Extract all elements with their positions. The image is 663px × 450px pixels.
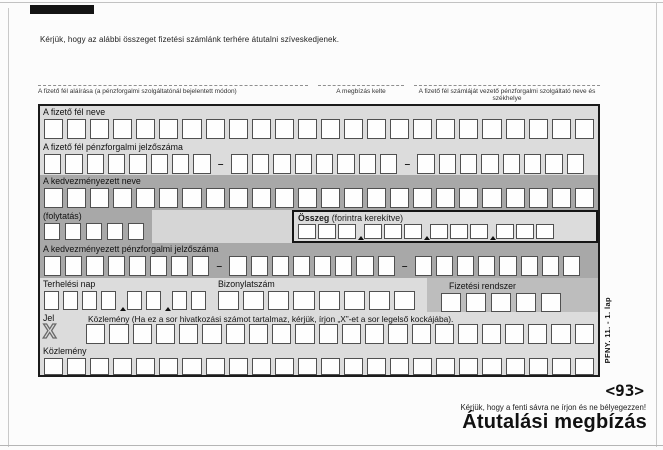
- char-cell[interactable]: [275, 119, 294, 139]
- char-cell[interactable]: [275, 188, 294, 208]
- char-cell[interactable]: [575, 324, 594, 344]
- char-cell[interactable]: [206, 358, 225, 375]
- payer-account-row: A fizető fél pénzforgalmi jelzőszáma ––: [40, 141, 598, 175]
- page-frame-left: [8, 8, 9, 447]
- char-cell[interactable]: [541, 293, 561, 312]
- char-cell[interactable]: [229, 256, 246, 276]
- char-cell[interactable]: [202, 324, 221, 344]
- char-cell[interactable]: [506, 119, 525, 139]
- char-cell[interactable]: [171, 256, 188, 276]
- char-cell[interactable]: [249, 324, 268, 344]
- beneficiary-name-cells: [40, 187, 598, 211]
- char-cell[interactable]: [575, 119, 594, 139]
- char-cell[interactable]: [272, 324, 291, 344]
- payer-account-label: A fizető fél pénzforgalmi jelzőszáma: [40, 141, 598, 153]
- char-cell[interactable]: [384, 224, 402, 239]
- voucher-number-section: Bizonylatszám: [212, 278, 427, 312]
- debit-day-section: Terhelési nap: [40, 278, 212, 312]
- amount-cells: [294, 224, 596, 241]
- char-cell[interactable]: [136, 119, 155, 139]
- char-cell[interactable]: [63, 291, 78, 310]
- char-cell[interactable]: [65, 154, 82, 174]
- char-cell[interactable]: [563, 256, 580, 276]
- char-cell[interactable]: [136, 188, 155, 208]
- remittance2-label: Közlemény: [40, 345, 598, 357]
- char-cell[interactable]: [128, 223, 144, 240]
- char-cell[interactable]: [413, 358, 432, 375]
- char-cell[interactable]: [316, 154, 333, 174]
- char-cell[interactable]: [506, 188, 525, 208]
- char-cell[interactable]: [503, 154, 520, 174]
- beneficiary-name-label: A kedvezményezett neve: [40, 175, 598, 187]
- char-cell[interactable]: [380, 154, 397, 174]
- char-cell[interactable]: [378, 256, 395, 276]
- debit-day-label: Terhelési nap: [40, 278, 212, 290]
- char-cell[interactable]: [82, 291, 97, 310]
- char-cell[interactable]: [430, 224, 448, 239]
- char-cell[interactable]: [65, 223, 81, 240]
- char-cell[interactable]: [192, 256, 209, 276]
- remittance1-cells: [86, 324, 598, 344]
- char-cell[interactable]: [113, 188, 132, 208]
- char-cell[interactable]: [107, 223, 123, 240]
- continuation-cells: [40, 222, 152, 243]
- char-cell[interactable]: [415, 256, 432, 276]
- payment-system-section: Fizetési rendszer: [427, 278, 598, 312]
- char-cell[interactable]: [293, 256, 310, 276]
- char-cell[interactable]: [528, 324, 547, 344]
- char-cell[interactable]: [113, 358, 132, 375]
- char-cell[interactable]: [226, 324, 245, 344]
- char-cell[interactable]: [218, 291, 239, 310]
- char-cell[interactable]: [460, 154, 477, 174]
- char-cell[interactable]: [404, 224, 422, 239]
- char-cell[interactable]: [367, 119, 386, 139]
- signature-header-row: A fizető fél aláírása (a pénzforgalmi sz…: [38, 85, 600, 102]
- char-cell[interactable]: [321, 188, 340, 208]
- char-cell[interactable]: [367, 188, 386, 208]
- char-cell[interactable]: [482, 188, 501, 208]
- char-cell[interactable]: [150, 256, 167, 276]
- char-cell[interactable]: [113, 119, 132, 139]
- char-cell[interactable]: [536, 224, 554, 239]
- char-cell[interactable]: [413, 188, 432, 208]
- signature-label: A fizető fél aláírása (a pénzforgalmi sz…: [38, 85, 308, 102]
- payer-name-row: A fizető fél neve: [40, 106, 598, 141]
- char-cell[interactable]: [459, 119, 478, 139]
- char-cell[interactable]: [338, 224, 356, 239]
- char-cell[interactable]: [293, 291, 314, 310]
- char-cell[interactable]: [108, 154, 125, 174]
- payer-name-label: A fizető fél neve: [40, 106, 598, 118]
- char-cell[interactable]: [44, 223, 60, 240]
- char-cell[interactable]: [44, 291, 59, 310]
- char-cell[interactable]: [273, 154, 290, 174]
- char-cell[interactable]: [229, 119, 248, 139]
- char-cell[interactable]: [435, 324, 454, 344]
- transfer-form-grid: A fizető fél neve A fizető fél pénzforga…: [38, 104, 600, 377]
- char-cell[interactable]: [129, 256, 146, 276]
- char-cell[interactable]: [458, 324, 477, 344]
- char-cell[interactable]: [229, 358, 248, 375]
- amount-label: Összeg (forintra kerekítve): [294, 212, 596, 224]
- payer-bank-label: A fizető fél számláját vezető pénzforgal…: [414, 85, 600, 102]
- continuation-amount-row: (folytatás) Összeg (forintra kerekítve): [40, 210, 598, 243]
- payer-name-cells: [40, 118, 598, 142]
- char-cell[interactable]: [298, 358, 317, 375]
- char-cell[interactable]: [172, 291, 187, 310]
- char-cell[interactable]: [298, 188, 317, 208]
- char-cell[interactable]: [86, 223, 102, 240]
- char-cell[interactable]: [482, 324, 501, 344]
- group-tick: [358, 224, 362, 239]
- char-cell[interactable]: [90, 188, 109, 208]
- char-cell[interactable]: [545, 154, 562, 174]
- char-cell[interactable]: [337, 154, 354, 174]
- char-cell[interactable]: [516, 293, 536, 312]
- group-tick: [120, 291, 123, 310]
- flag-section: Jel X: [40, 312, 66, 345]
- char-cell[interactable]: [367, 358, 386, 375]
- group-tick: [490, 224, 494, 239]
- char-cell[interactable]: [551, 324, 570, 344]
- char-cell[interactable]: [506, 358, 525, 375]
- continuation-section: (folytatás): [40, 210, 152, 243]
- char-cell[interactable]: [364, 224, 382, 239]
- char-cell[interactable]: [101, 291, 116, 310]
- char-cell[interactable]: [275, 358, 294, 375]
- char-cell[interactable]: [159, 358, 178, 375]
- char-cell[interactable]: [344, 119, 363, 139]
- char-cell[interactable]: [516, 224, 534, 239]
- account-separator: –: [397, 154, 417, 174]
- char-cell[interactable]: [318, 224, 336, 239]
- char-cell[interactable]: [321, 119, 340, 139]
- cell-group: [415, 256, 580, 276]
- char-cell[interactable]: [109, 324, 128, 344]
- flag-remittance-row: Jel X Közlemény (Ha ez a sor hivatkozási…: [40, 312, 598, 345]
- char-cell[interactable]: [466, 293, 486, 312]
- char-cell[interactable]: [86, 256, 103, 276]
- char-cell[interactable]: [529, 119, 548, 139]
- char-cell[interactable]: [179, 324, 198, 344]
- char-cell[interactable]: [365, 324, 384, 344]
- char-cell[interactable]: [172, 154, 189, 174]
- voucher-number-label: Bizonylatszám: [212, 278, 427, 290]
- char-cell[interactable]: [44, 154, 61, 174]
- order-date-label: A megbízás kelte: [318, 85, 404, 102]
- char-cell[interactable]: [388, 324, 407, 344]
- char-cell[interactable]: [542, 256, 559, 276]
- char-cell[interactable]: [44, 358, 63, 375]
- char-cell[interactable]: [457, 256, 474, 276]
- amount-label-rest: (forintra kerekítve): [329, 213, 403, 223]
- char-cell[interactable]: [193, 154, 210, 174]
- char-cell[interactable]: [524, 154, 541, 174]
- char-cell[interactable]: [133, 324, 152, 344]
- char-cell[interactable]: [44, 256, 61, 276]
- amount-box: Összeg (forintra kerekítve): [292, 210, 598, 243]
- char-cell[interactable]: [252, 358, 271, 375]
- char-cell[interactable]: [65, 256, 82, 276]
- document-title: Átutalási megbízás: [462, 411, 647, 434]
- char-cell[interactable]: [319, 291, 340, 310]
- char-cell[interactable]: [521, 256, 538, 276]
- char-cell[interactable]: [44, 188, 63, 208]
- char-cell[interactable]: [394, 291, 415, 310]
- account-separator: –: [211, 154, 231, 174]
- char-cell[interactable]: [552, 358, 571, 375]
- char-cell[interactable]: [413, 119, 432, 139]
- char-cell[interactable]: [295, 324, 314, 344]
- char-cell[interactable]: [529, 358, 548, 375]
- char-cell[interactable]: [459, 358, 478, 375]
- char-cell[interactable]: [478, 256, 495, 276]
- char-cell[interactable]: [191, 291, 206, 310]
- char-cell[interactable]: [390, 188, 409, 208]
- debit-day-cells: [40, 290, 212, 313]
- registration-mark-icon: [30, 5, 94, 14]
- page-frame-top: [0, 2, 663, 3]
- char-cell[interactable]: [44, 119, 63, 139]
- char-cell[interactable]: [482, 358, 501, 375]
- char-cell[interactable]: [575, 358, 594, 375]
- payment-system-label: Fizetési rendszer: [427, 278, 598, 292]
- char-cell[interactable]: [575, 188, 594, 208]
- account-separator: –: [395, 256, 415, 276]
- char-cell[interactable]: [356, 256, 373, 276]
- transfer-order-form-page: Kérjük, hogy az alábbi összeget fizetési…: [0, 0, 663, 450]
- char-cell[interactable]: [182, 119, 201, 139]
- amount-label-bold: Összeg: [298, 213, 329, 223]
- char-cell[interactable]: [146, 291, 161, 310]
- char-cell[interactable]: [151, 154, 168, 174]
- flag-x-mark: X: [40, 324, 66, 341]
- char-cell[interactable]: [436, 256, 453, 276]
- debit-voucher-row: Terhelési nap Bizonylatszám Fizetési ren…: [40, 278, 598, 312]
- continuation-label: (folytatás): [40, 210, 152, 222]
- voucher-number-cells: [212, 290, 427, 313]
- intro-text: Kérjük, hogy az alábbi összeget fizetési…: [40, 35, 339, 44]
- cell-group: [229, 256, 394, 276]
- char-cell[interactable]: [342, 324, 361, 344]
- char-cell[interactable]: [182, 358, 201, 375]
- char-cell[interactable]: [436, 119, 455, 139]
- empty-spacer-area: [152, 210, 292, 243]
- page-frame-right: [656, 2, 657, 447]
- char-cell[interactable]: [441, 293, 461, 312]
- char-cell[interactable]: [86, 324, 105, 344]
- char-cell[interactable]: [482, 119, 501, 139]
- char-cell[interactable]: [136, 358, 155, 375]
- char-cell[interactable]: [272, 256, 289, 276]
- char-cell[interactable]: [108, 256, 125, 276]
- char-cell[interactable]: [496, 224, 514, 239]
- beneficiary-account-label: A kedvezményezett pénzforgalmi jelzőszám…: [40, 243, 598, 255]
- beneficiary-account-cells: ––: [40, 255, 598, 279]
- char-cell[interactable]: [67, 119, 86, 139]
- char-cell[interactable]: [252, 188, 271, 208]
- char-cell[interactable]: [206, 188, 225, 208]
- ocr-code: <93>: [605, 381, 644, 400]
- payer-account-cells: ––: [40, 153, 598, 177]
- char-cell[interactable]: [206, 119, 225, 139]
- remittance1-label: Közlemény (Ha ez a sor hivatkozási számo…: [88, 314, 453, 324]
- account-separator: –: [209, 256, 229, 276]
- char-cell[interactable]: [417, 154, 434, 174]
- char-cell[interactable]: [412, 324, 431, 344]
- char-cell[interactable]: [319, 324, 338, 344]
- char-cell[interactable]: [390, 119, 409, 139]
- char-cell[interactable]: [67, 188, 86, 208]
- char-cell[interactable]: [499, 256, 516, 276]
- cell-group: [417, 154, 584, 174]
- signature-header-gap: [404, 85, 414, 102]
- remittance2-row: Közlemény: [40, 345, 598, 375]
- char-cell[interactable]: [567, 154, 584, 174]
- char-cell[interactable]: [268, 291, 289, 310]
- char-cell[interactable]: [344, 188, 363, 208]
- cell-group: [44, 154, 211, 174]
- char-cell[interactable]: [231, 154, 248, 174]
- char-cell[interactable]: [159, 119, 178, 139]
- signature-header-gap: [308, 85, 318, 102]
- char-cell[interactable]: [529, 188, 548, 208]
- char-cell[interactable]: [159, 188, 178, 208]
- char-cell[interactable]: [251, 256, 268, 276]
- char-cell[interactable]: [335, 256, 352, 276]
- char-cell[interactable]: [459, 188, 478, 208]
- char-cell[interactable]: [90, 358, 109, 375]
- char-cell[interactable]: [182, 188, 201, 208]
- char-cell[interactable]: [359, 154, 376, 174]
- char-cell[interactable]: [450, 224, 468, 239]
- group-tick: [165, 291, 168, 310]
- char-cell[interactable]: [67, 358, 86, 375]
- char-cell[interactable]: [369, 291, 390, 310]
- char-cell[interactable]: [505, 324, 524, 344]
- char-cell[interactable]: [552, 188, 571, 208]
- char-cell[interactable]: [229, 188, 248, 208]
- char-cell[interactable]: [344, 358, 363, 375]
- char-cell[interactable]: [295, 154, 312, 174]
- char-cell[interactable]: [314, 256, 331, 276]
- char-cell[interactable]: [87, 154, 104, 174]
- cell-group: [231, 154, 398, 174]
- char-cell[interactable]: [436, 188, 455, 208]
- char-cell[interactable]: [552, 119, 571, 139]
- form-code-vertical: PFNY. 11. - 1. lap: [603, 297, 612, 363]
- char-cell[interactable]: [298, 119, 317, 139]
- char-cell[interactable]: [129, 154, 146, 174]
- beneficiary-name-row: A kedvezményezett neve: [40, 175, 598, 210]
- page-frame-bottom: [0, 445, 663, 446]
- group-tick: [424, 224, 428, 239]
- char-cell[interactable]: [470, 224, 488, 239]
- char-cell[interactable]: [436, 358, 455, 375]
- char-cell[interactable]: [491, 293, 511, 312]
- char-cell[interactable]: [481, 154, 498, 174]
- char-cell[interactable]: [243, 291, 264, 310]
- remittance2-cells: [40, 357, 598, 378]
- char-cell[interactable]: [321, 358, 340, 375]
- char-cell[interactable]: [156, 324, 175, 344]
- char-cell[interactable]: [298, 224, 316, 239]
- char-cell[interactable]: [439, 154, 456, 174]
- char-cell[interactable]: [390, 358, 409, 375]
- char-cell[interactable]: [90, 119, 109, 139]
- beneficiary-account-row: A kedvezményezett pénzforgalmi jelzőszám…: [40, 243, 598, 278]
- char-cell[interactable]: [127, 291, 142, 310]
- char-cell[interactable]: [252, 119, 271, 139]
- cell-group: [44, 256, 209, 276]
- char-cell[interactable]: [344, 291, 365, 310]
- char-cell[interactable]: [252, 154, 269, 174]
